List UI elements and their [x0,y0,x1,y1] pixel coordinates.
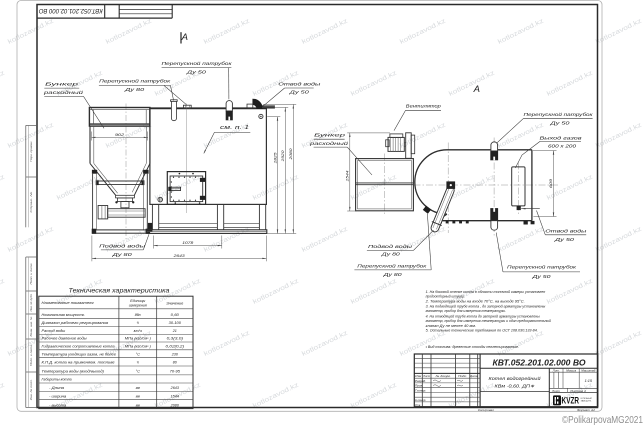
svg-text:Ду 80: Ду 80 [124,87,145,92]
svg-text:1544: 1544 [345,170,349,181]
svg-text:Изм: Изм [415,374,421,378]
svg-text:70-95: 70-95 [170,370,180,374]
svg-text:Лит.: Лит. [552,368,560,372]
svg-text:2080: 2080 [170,403,179,407]
svg-text:°С: °С [136,370,141,374]
svg-text:KVZR: KVZR [562,395,580,405]
svg-text:КОТЕЛЬНЫЙ: КОТЕЛЬНЫЙ [581,397,592,400]
svg-text:Ду 80: Ду 80 [382,272,402,277]
svg-text:Габариты котла: Габариты котла [42,378,72,382]
svg-text:0,3(3,0): 0,3(3,0) [167,337,183,341]
svg-text:КВм -0,60. ДП∗: КВм -0,60. ДП∗ [495,383,535,388]
svg-text:1920: 1920 [281,150,285,161]
svg-text:Перепускной патрубок: Перепускной патрубок [524,111,594,117]
svg-text:- высота: - высота [49,403,66,407]
svg-text:Листов 1: Листов 1 [569,389,587,393]
svg-text:КВТ.052.201.02.000 ВО: КВТ.052.201.02.000 ВО [38,7,102,13]
svg-text:%: % [137,321,139,325]
svg-text:КВТ.052.201.02.000 ВО: КВТ.052.201.02.000 ВО [493,357,586,367]
svg-text:Вентилятор: Вентилятор [406,104,442,109]
svg-text:902: 902 [115,133,124,137]
svg-text:1544: 1544 [171,394,179,398]
svg-text:Ду 50: Ду 50 [185,69,206,74]
svg-text:Ду 50: Ду 50 [288,90,309,95]
svg-text:Лист: Лист [422,374,431,378]
svg-text:Перепускной патрубок: Перепускной патрубок [99,78,171,84]
svg-text:Формат А2: Формат А2 [577,408,596,412]
svg-text:- ширина: - ширина [49,394,66,398]
svg-text:Утв.: Утв. [415,403,421,407]
svg-text:230: 230 [171,352,178,356]
svg-text:МВт: МВт [135,313,141,317]
svg-text:Гидравлическое сопротивление к: Гидравлическое сопротивление котла [42,345,115,349]
svg-text:А: А [181,32,188,43]
svg-text:©PolikarpovaMG2021: ©PolikarpovaMG2021 [562,415,643,426]
svg-text:Ду 80: Ду 80 [380,251,400,256]
svg-text:Единицы: Единицы [130,299,146,303]
svg-text:Ду 50: Ду 50 [549,121,570,126]
svg-text:0,02(0,2): 0,02(0,2) [166,345,184,349]
svg-text:Бункер: Бункер [45,82,79,87]
svg-text:Разраб.: Разраб. [415,379,426,383]
svg-text:5. Остальные технические треб: 5. Остальные технические требования по О… [426,328,538,333]
svg-text:Рабочее давление воды: Рабочее давление воды [42,337,88,341]
svg-text:м³/ч: м³/ч [134,329,142,333]
svg-text:Перепускной патрубок: Перепускной патрубок [507,264,577,270]
svg-text:2643: 2643 [170,386,179,390]
svg-text:Подвод воды: Подвод воды [99,244,146,249]
svg-text:Температура уходящих газов, не: Температура уходящих газов, не более [42,352,116,356]
svg-text:Расход воды: Расход воды [42,329,66,333]
svg-text:Перв. примен.: Перв. примен. [29,140,33,161]
svg-text:Подвод воды: Подвод воды [368,244,413,249]
svg-text:Масштаб: Масштаб [581,368,595,372]
svg-text:Подп. и дата: Подп. и дата [29,344,33,366]
svg-text:см. п. 1: см. п. 1 [220,125,249,131]
svg-text:1:15: 1:15 [585,379,593,383]
svg-text:Отвод воды: Отвод воды [545,229,587,234]
svg-text:Отвод воды: Отвод воды [278,81,321,86]
svg-text:- Длина: - Длина [49,386,64,390]
svg-text:1825: 1825 [273,152,277,163]
svg-text:МПа (кгс/см² ): МПа (кгс/см² ) [125,345,151,349]
svg-text:Бункер: Бункер [314,133,346,138]
svg-text:°С: °С [136,352,141,356]
svg-text:Котел водогрейный: Котел водогрейный [489,375,542,381]
svg-text:609: 609 [549,179,553,188]
svg-text:• Вид топлива: древесные отх: • Вид топлива: древесные отходы пеллетир… [426,344,519,349]
svg-text:МПа (кгс/см² ): МПа (кгс/см² ) [125,337,151,341]
svg-text:Пров.: Пров. [415,384,423,388]
svg-text:А: А [473,84,480,95]
svg-text:Справ. №: Справ. № [29,192,33,213]
svg-text:Температура воды (вход/выход): Температура воды (вход/выход) [42,370,104,374]
svg-text:Лист: Лист [551,389,561,393]
svg-text:Инв. № дубл.: Инв. № дубл. [29,293,33,311]
svg-text:Ду 80: Ду 80 [111,252,132,257]
svg-text:№ докум.: № докум. [436,374,451,378]
svg-text:расходный: расходный [308,140,348,146]
svg-text:600 х 200: 600 х 200 [548,143,577,148]
svg-text:Диапазон рабочего регулировани: Диапазон рабочего регулирования [40,321,108,325]
svg-text:измерения: измерения [129,304,147,308]
svg-text:Дата: Дата [469,374,479,378]
svg-text:Значение: Значение [166,302,183,306]
svg-text:2643: 2643 [172,254,184,258]
svg-text:80: 80 [173,361,177,365]
svg-text:К.П.Д. котла на применяем. топ: К.П.Д. котла на применяем. топливе [42,361,115,365]
svg-text:мм: мм [136,386,141,390]
svg-text:Номинальная мощность: Номинальная мощность [42,313,85,317]
svg-text:Взам. инв. №: Взам. инв. № [29,316,33,336]
svg-text:мм: мм [136,394,141,398]
svg-text:Т.контр.: Т.контр. [415,389,426,393]
svg-text:мм: мм [136,403,141,407]
svg-text:Перепускной патрубок: Перепускной патрубок [162,60,233,66]
svg-text:Подп.: Подп. [458,374,467,378]
svg-text:Техническая характеристика: Техническая характеристика [69,287,170,294]
svg-text:%: % [137,361,139,365]
svg-text:ЗАВОД Р.К.: ЗАВОД Р.К. [581,400,592,403]
svg-text:Подп. и дата: Подп. и дата [29,263,33,285]
svg-text:Н.контр.: Н.контр. [415,398,426,402]
svg-text:Перепускной патрубок: Перепускной патрубок [357,263,427,269]
svg-text:Инв. № подл.: Инв. № подл. [29,379,33,400]
svg-text:расходный: расходный [42,89,83,95]
svg-text:Выход газов: Выход газов [540,135,583,140]
svg-text:2080: 2080 [289,148,293,160]
svg-text:Ду 50: Ду 50 [553,237,574,242]
svg-text:30-100: 30-100 [169,321,181,325]
svg-text:Копировал: Копировал [478,408,494,412]
svg-text:0,60: 0,60 [171,313,179,317]
svg-text:Ду 50: Ду 50 [531,274,551,279]
svg-text:21: 21 [172,329,177,333]
svg-text:1078: 1078 [182,241,193,245]
svg-text:Масса: Масса [566,368,576,372]
svg-text:Наименование показателя: Наименование показателя [42,301,94,305]
